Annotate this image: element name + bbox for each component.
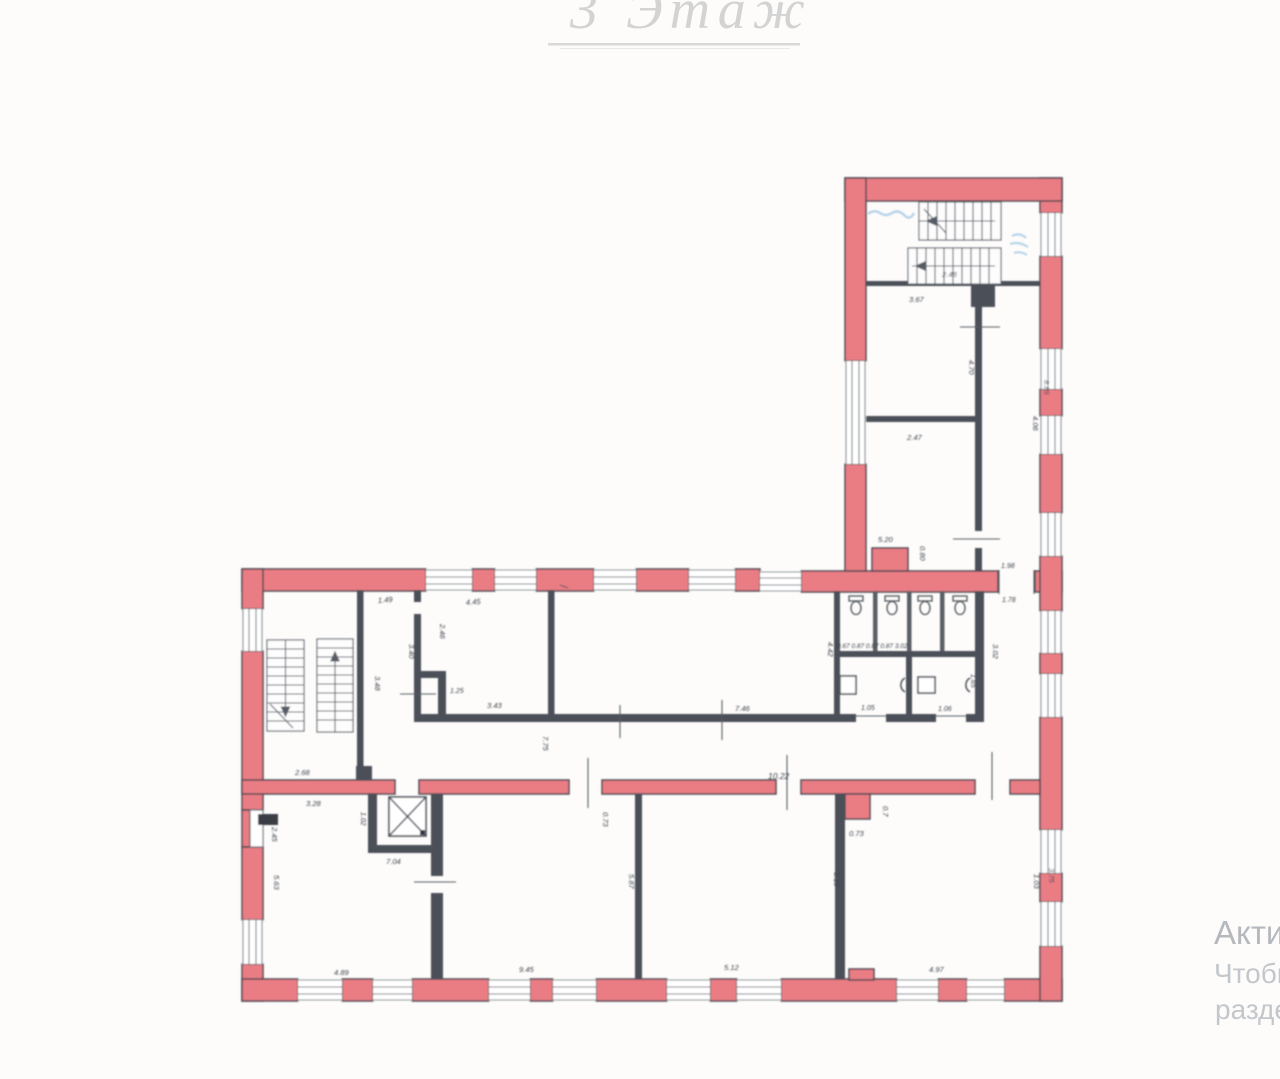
- svg-text:1.03: 1.03: [1032, 874, 1041, 890]
- svg-text:1.78: 1.78: [1002, 597, 1016, 604]
- svg-text:3.02: 3.02: [991, 644, 1000, 660]
- svg-text:1.05: 1.05: [861, 705, 875, 712]
- svg-text:5.63: 5.63: [272, 875, 281, 891]
- svg-text:1.65: 1.65: [969, 674, 976, 688]
- svg-text:4.06: 4.06: [1031, 416, 1040, 432]
- svg-text:3.75: 3.75: [1047, 868, 1056, 884]
- svg-text:7.04: 7.04: [386, 857, 401, 866]
- svg-text:9.45: 9.45: [519, 965, 535, 974]
- svg-text:3.28: 3.28: [306, 799, 322, 808]
- svg-text:2.48: 2.48: [941, 270, 958, 279]
- svg-text:3 Этаж: 3 Этаж: [569, 0, 812, 41]
- svg-text:1.98: 1.98: [1001, 563, 1015, 570]
- svg-text:5.87: 5.87: [627, 874, 636, 890]
- svg-text:1.25: 1.25: [450, 688, 464, 695]
- svg-text:3.48: 3.48: [373, 676, 382, 692]
- svg-text:3.67: 3.67: [909, 295, 925, 304]
- svg-text:3.40: 3.40: [407, 644, 416, 660]
- svg-text:разде: разде: [1215, 994, 1280, 1025]
- svg-text:2.46: 2.46: [438, 623, 447, 640]
- svg-text:3.43: 3.43: [487, 701, 503, 710]
- svg-text:10.22: 10.22: [768, 771, 790, 781]
- svg-text:2.68: 2.68: [294, 768, 311, 777]
- svg-text:0.80: 0.80: [918, 546, 927, 562]
- svg-text:4.45: 4.45: [466, 597, 482, 607]
- svg-text:0.7: 0.7: [881, 806, 890, 817]
- svg-text:8.85: 8.85: [1042, 380, 1051, 396]
- svg-text:1.02: 1.02: [359, 812, 366, 826]
- svg-text:4.89: 4.89: [334, 968, 350, 977]
- svg-text:Акти: Акти: [1214, 914, 1280, 951]
- svg-text:7.75: 7.75: [541, 736, 550, 752]
- svg-text:1.06: 1.06: [938, 706, 952, 713]
- svg-text:4.70: 4.70: [967, 360, 976, 376]
- svg-text:0.73: 0.73: [849, 829, 865, 838]
- svg-text:4.97: 4.97: [929, 965, 945, 974]
- svg-text:4.42: 4.42: [826, 642, 835, 658]
- svg-text:3.67 0.87 0.87 0.87 3.02: 3.67 0.87 0.87 0.87 3.02: [837, 643, 908, 650]
- svg-text:2.45: 2.45: [270, 826, 279, 843]
- svg-text:5.12: 5.12: [724, 963, 740, 972]
- svg-text:Чтобы: Чтобы: [1214, 958, 1280, 989]
- svg-text:1.49: 1.49: [378, 595, 394, 605]
- svg-text:7.46: 7.46: [735, 704, 751, 713]
- svg-text:0.73: 0.73: [601, 812, 610, 828]
- svg-text:3.19: 3.19: [832, 872, 841, 888]
- svg-text:2.47: 2.47: [906, 433, 923, 442]
- svg-text:5.20: 5.20: [878, 535, 894, 544]
